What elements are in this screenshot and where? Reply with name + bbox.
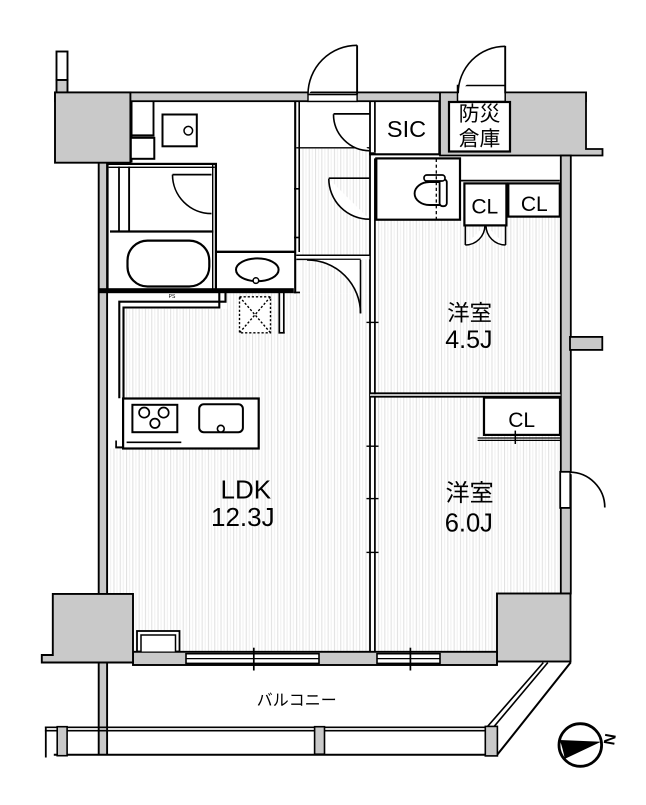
svg-text:CL: CL [521, 193, 548, 216]
svg-text:PS: PS [169, 294, 176, 300]
svg-text:6.0J: 6.0J [445, 509, 493, 537]
svg-text:CL: CL [508, 409, 535, 432]
svg-text:4.5J: 4.5J [445, 326, 492, 354]
svg-text:SIC: SIC [387, 116, 426, 142]
svg-text:12.3J: 12.3J [211, 502, 275, 532]
svg-text:LDK: LDK [221, 474, 272, 504]
svg-text:CL: CL [471, 196, 498, 219]
